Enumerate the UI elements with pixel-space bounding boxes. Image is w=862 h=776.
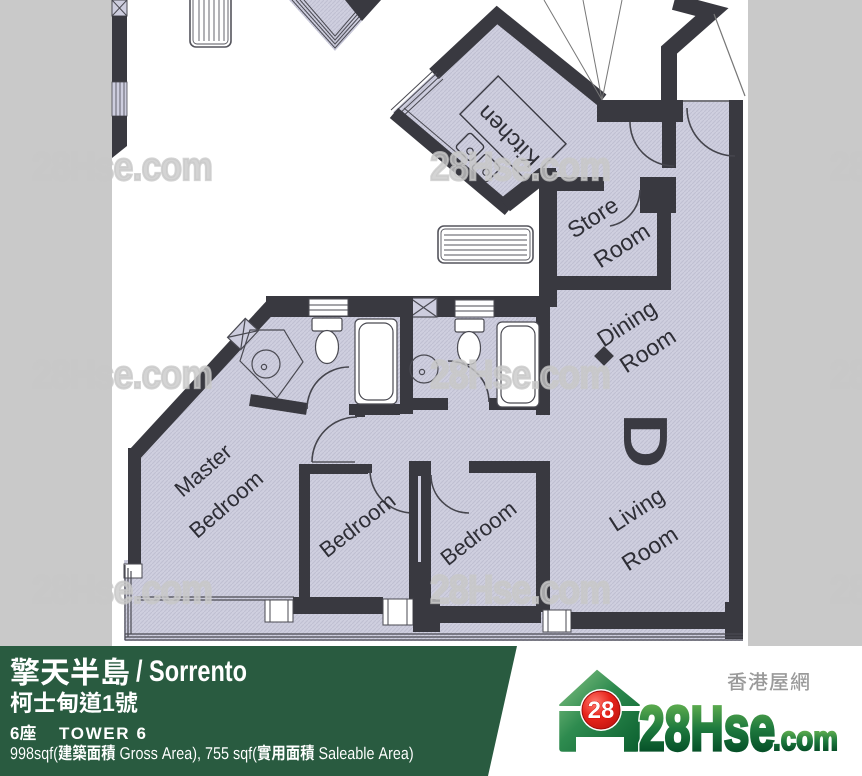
svg-text:28Hse.com: 28Hse.com bbox=[830, 145, 862, 189]
svg-text:28Hse.com: 28Hse.com bbox=[32, 568, 212, 612]
svg-text:28Hse.com: 28Hse.com bbox=[32, 353, 212, 397]
svg-text:28Hse.com: 28Hse.com bbox=[830, 568, 862, 612]
svg-text:28Hse.com: 28Hse.com bbox=[430, 353, 610, 397]
svg-text:28: 28 bbox=[588, 697, 615, 724]
svg-text:28Hse.com: 28Hse.com bbox=[430, 145, 610, 189]
svg-text:TOWER 6: TOWER 6 bbox=[59, 724, 146, 743]
svg-text:28Hse.com: 28Hse.com bbox=[430, 568, 610, 612]
svg-text:28Hse.com: 28Hse.com bbox=[32, 145, 212, 189]
svg-text:D: D bbox=[611, 413, 680, 469]
svg-text:/ Sorrento: / Sorrento bbox=[136, 655, 247, 688]
svg-text:28Hse.com: 28Hse.com bbox=[830, 353, 862, 397]
